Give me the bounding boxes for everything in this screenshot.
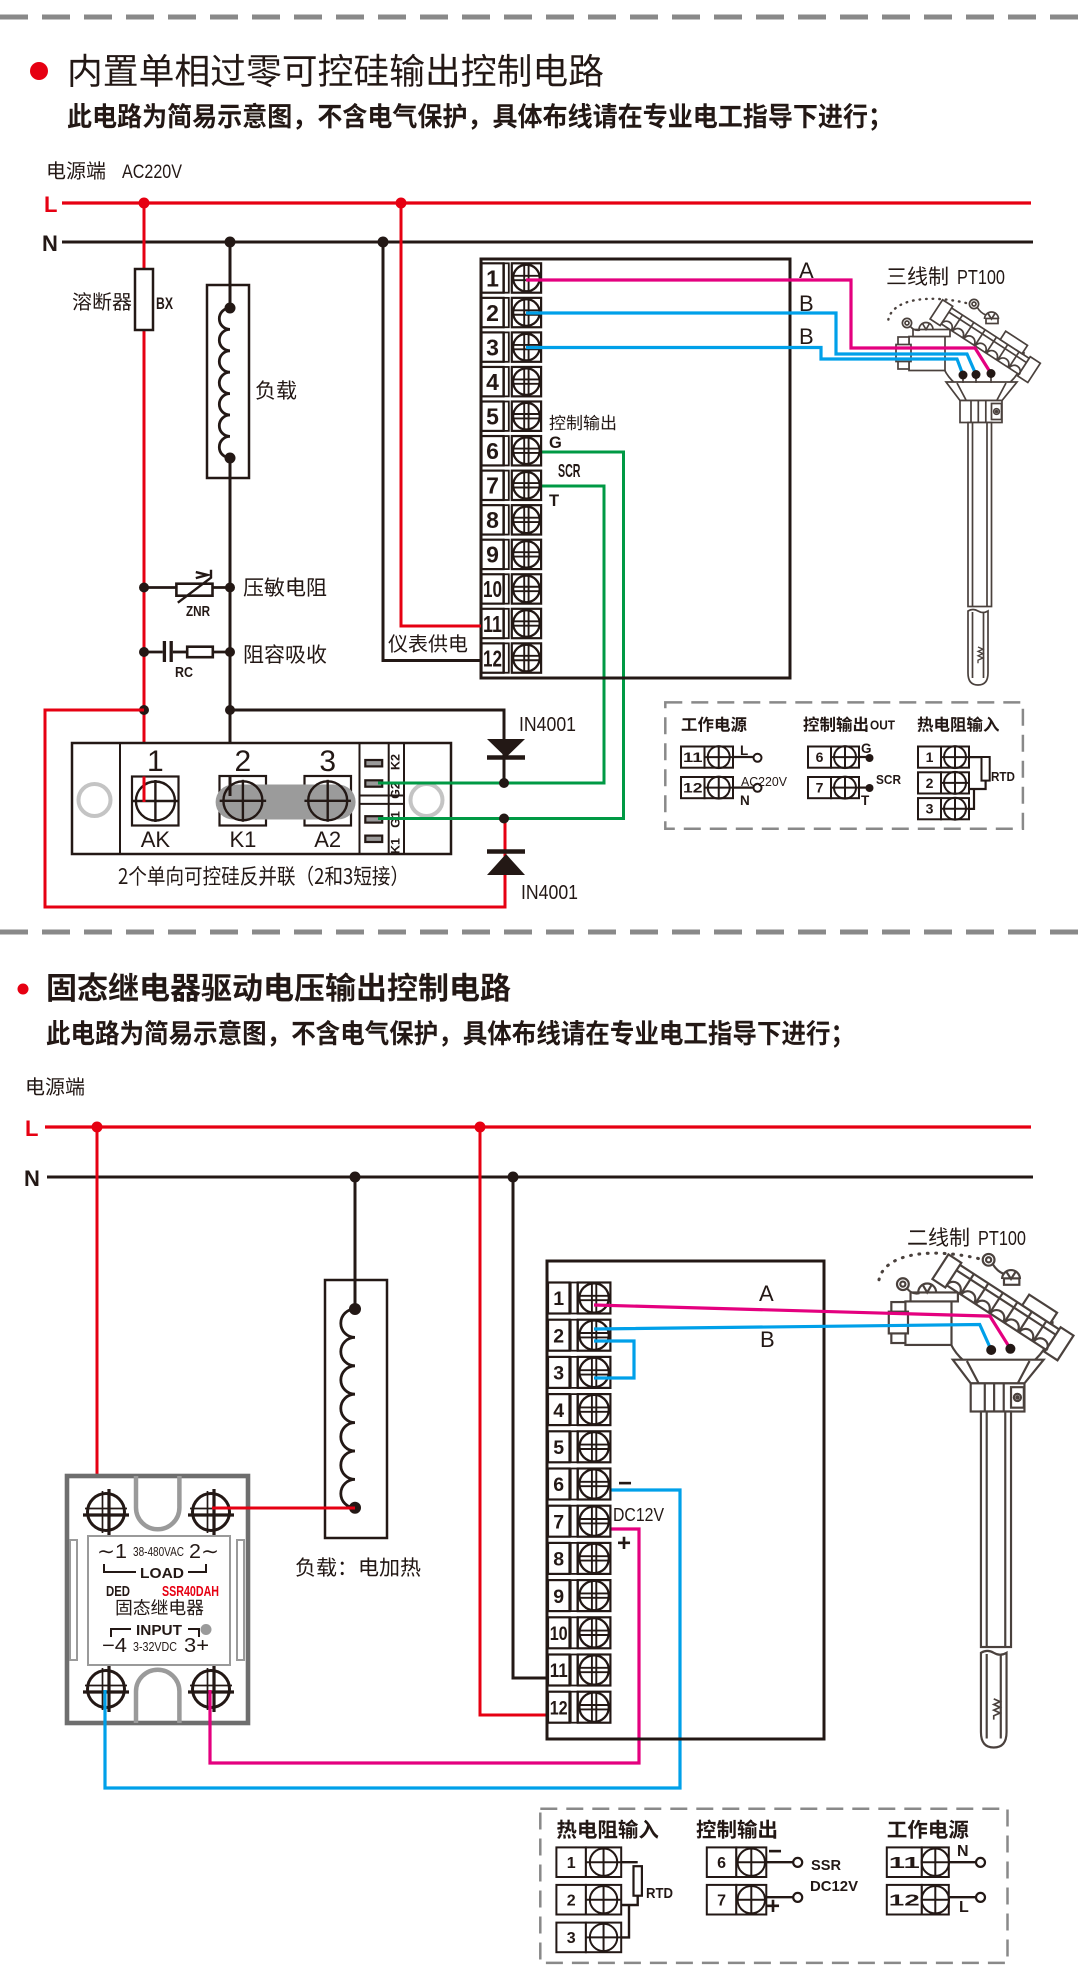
svg-text:AC220V: AC220V <box>122 162 182 183</box>
svg-text:7: 7 <box>486 473 499 499</box>
svg-text:A2: A2 <box>314 827 341 852</box>
svg-text:SSR: SSR <box>811 1857 841 1874</box>
svg-text:10: 10 <box>483 576 502 602</box>
svg-text:7: 7 <box>553 1511 564 1533</box>
svg-text:A: A <box>759 1281 774 1306</box>
svg-text:G: G <box>549 434 562 452</box>
svg-text:PT100: PT100 <box>978 1228 1026 1250</box>
svg-text:PT100: PT100 <box>957 267 1005 289</box>
svg-text:6: 6 <box>486 438 499 464</box>
svg-text:T: T <box>549 492 559 510</box>
svg-text:−4: −4 <box>102 1635 127 1657</box>
svg-text:+: + <box>617 1530 631 1557</box>
svg-text:1: 1 <box>553 1288 564 1310</box>
svg-text:3: 3 <box>553 1363 564 1385</box>
svg-text:1: 1 <box>567 1855 576 1872</box>
svg-text:5: 5 <box>486 403 499 429</box>
svg-text:8: 8 <box>486 507 499 533</box>
svg-text:N: N <box>42 231 58 256</box>
svg-text:2: 2 <box>553 1325 564 1347</box>
svg-text:DC12V: DC12V <box>810 1878 858 1895</box>
svg-text:K1: K1 <box>229 827 256 852</box>
svg-text:+: + <box>766 1893 780 1920</box>
svg-text:INPUT: INPUT <box>136 1622 182 1639</box>
svg-text:N: N <box>740 793 750 808</box>
svg-text:6: 6 <box>816 749 824 765</box>
svg-text:IN4001: IN4001 <box>521 882 578 904</box>
svg-text:5: 5 <box>553 1437 564 1459</box>
svg-text:L: L <box>740 743 748 758</box>
svg-text:6: 6 <box>553 1474 564 1496</box>
svg-text:3: 3 <box>486 334 499 360</box>
svg-text:AC220V: AC220V <box>741 775 788 789</box>
svg-text:11: 11 <box>483 611 502 637</box>
svg-text:B: B <box>799 324 814 349</box>
svg-text:L: L <box>44 192 57 217</box>
svg-text:OUT: OUT <box>870 718 895 733</box>
svg-text:T: T <box>861 793 870 808</box>
svg-text:1: 1 <box>486 265 499 291</box>
svg-text:6: 6 <box>717 1855 726 1872</box>
svg-text:BX: BX <box>156 295 173 313</box>
svg-text:3: 3 <box>319 745 336 778</box>
svg-text:LOAD: LOAD <box>140 1565 184 1582</box>
svg-text:SSR40DAH: SSR40DAH <box>162 1583 219 1600</box>
svg-text:7: 7 <box>816 780 824 796</box>
svg-text:1: 1 <box>147 745 164 778</box>
svg-text:8: 8 <box>553 1549 564 1571</box>
svg-text:G: G <box>861 741 872 756</box>
svg-text:4: 4 <box>486 369 499 395</box>
svg-text:12: 12 <box>483 645 502 671</box>
svg-text:N: N <box>24 1166 40 1191</box>
svg-text:3-32VDC: 3-32VDC <box>133 1639 177 1654</box>
svg-text:10: 10 <box>550 1623 568 1645</box>
svg-text:DED: DED <box>106 1583 130 1600</box>
svg-text:9: 9 <box>486 542 499 568</box>
svg-text:2: 2 <box>567 1892 576 1909</box>
svg-text:B: B <box>760 1327 775 1352</box>
svg-text:11: 11 <box>889 1855 920 1872</box>
svg-text:2: 2 <box>486 300 499 326</box>
svg-text:2∼: 2∼ <box>189 1541 219 1563</box>
svg-text:9: 9 <box>553 1586 564 1608</box>
svg-text:12: 12 <box>550 1697 568 1719</box>
svg-text:3: 3 <box>926 801 934 817</box>
svg-text:L: L <box>25 1116 38 1141</box>
svg-text:−: − <box>768 1838 782 1865</box>
svg-text:4: 4 <box>553 1400 564 1422</box>
svg-text:DC12V: DC12V <box>613 1505 664 1525</box>
svg-text:12: 12 <box>889 1892 920 1909</box>
svg-text:ZNR: ZNR <box>186 603 210 620</box>
svg-text:12: 12 <box>683 780 703 796</box>
svg-text:38-480VAC: 38-480VAC <box>133 1544 184 1559</box>
svg-text:L: L <box>959 1899 969 1916</box>
svg-text:RTD: RTD <box>646 1885 673 1902</box>
svg-text:N: N <box>957 1843 969 1860</box>
svg-text:AK: AK <box>141 827 171 852</box>
svg-text:RTD: RTD <box>991 770 1015 784</box>
svg-text:7: 7 <box>717 1892 726 1909</box>
svg-text:2: 2 <box>926 775 934 791</box>
svg-text:11: 11 <box>550 1660 568 1682</box>
svg-text:3+: 3+ <box>184 1635 209 1657</box>
svg-text:1: 1 <box>926 749 934 765</box>
svg-text:3: 3 <box>567 1930 576 1947</box>
svg-text:−: − <box>618 1470 632 1497</box>
svg-text:SCR: SCR <box>876 773 901 787</box>
svg-text:11: 11 <box>683 749 703 765</box>
svg-text:IN4001: IN4001 <box>519 714 576 736</box>
svg-text:SCR: SCR <box>558 461 581 481</box>
svg-text:2: 2 <box>235 745 252 778</box>
svg-text:∼1: ∼1 <box>97 1541 127 1563</box>
svg-text:RC: RC <box>175 665 193 681</box>
